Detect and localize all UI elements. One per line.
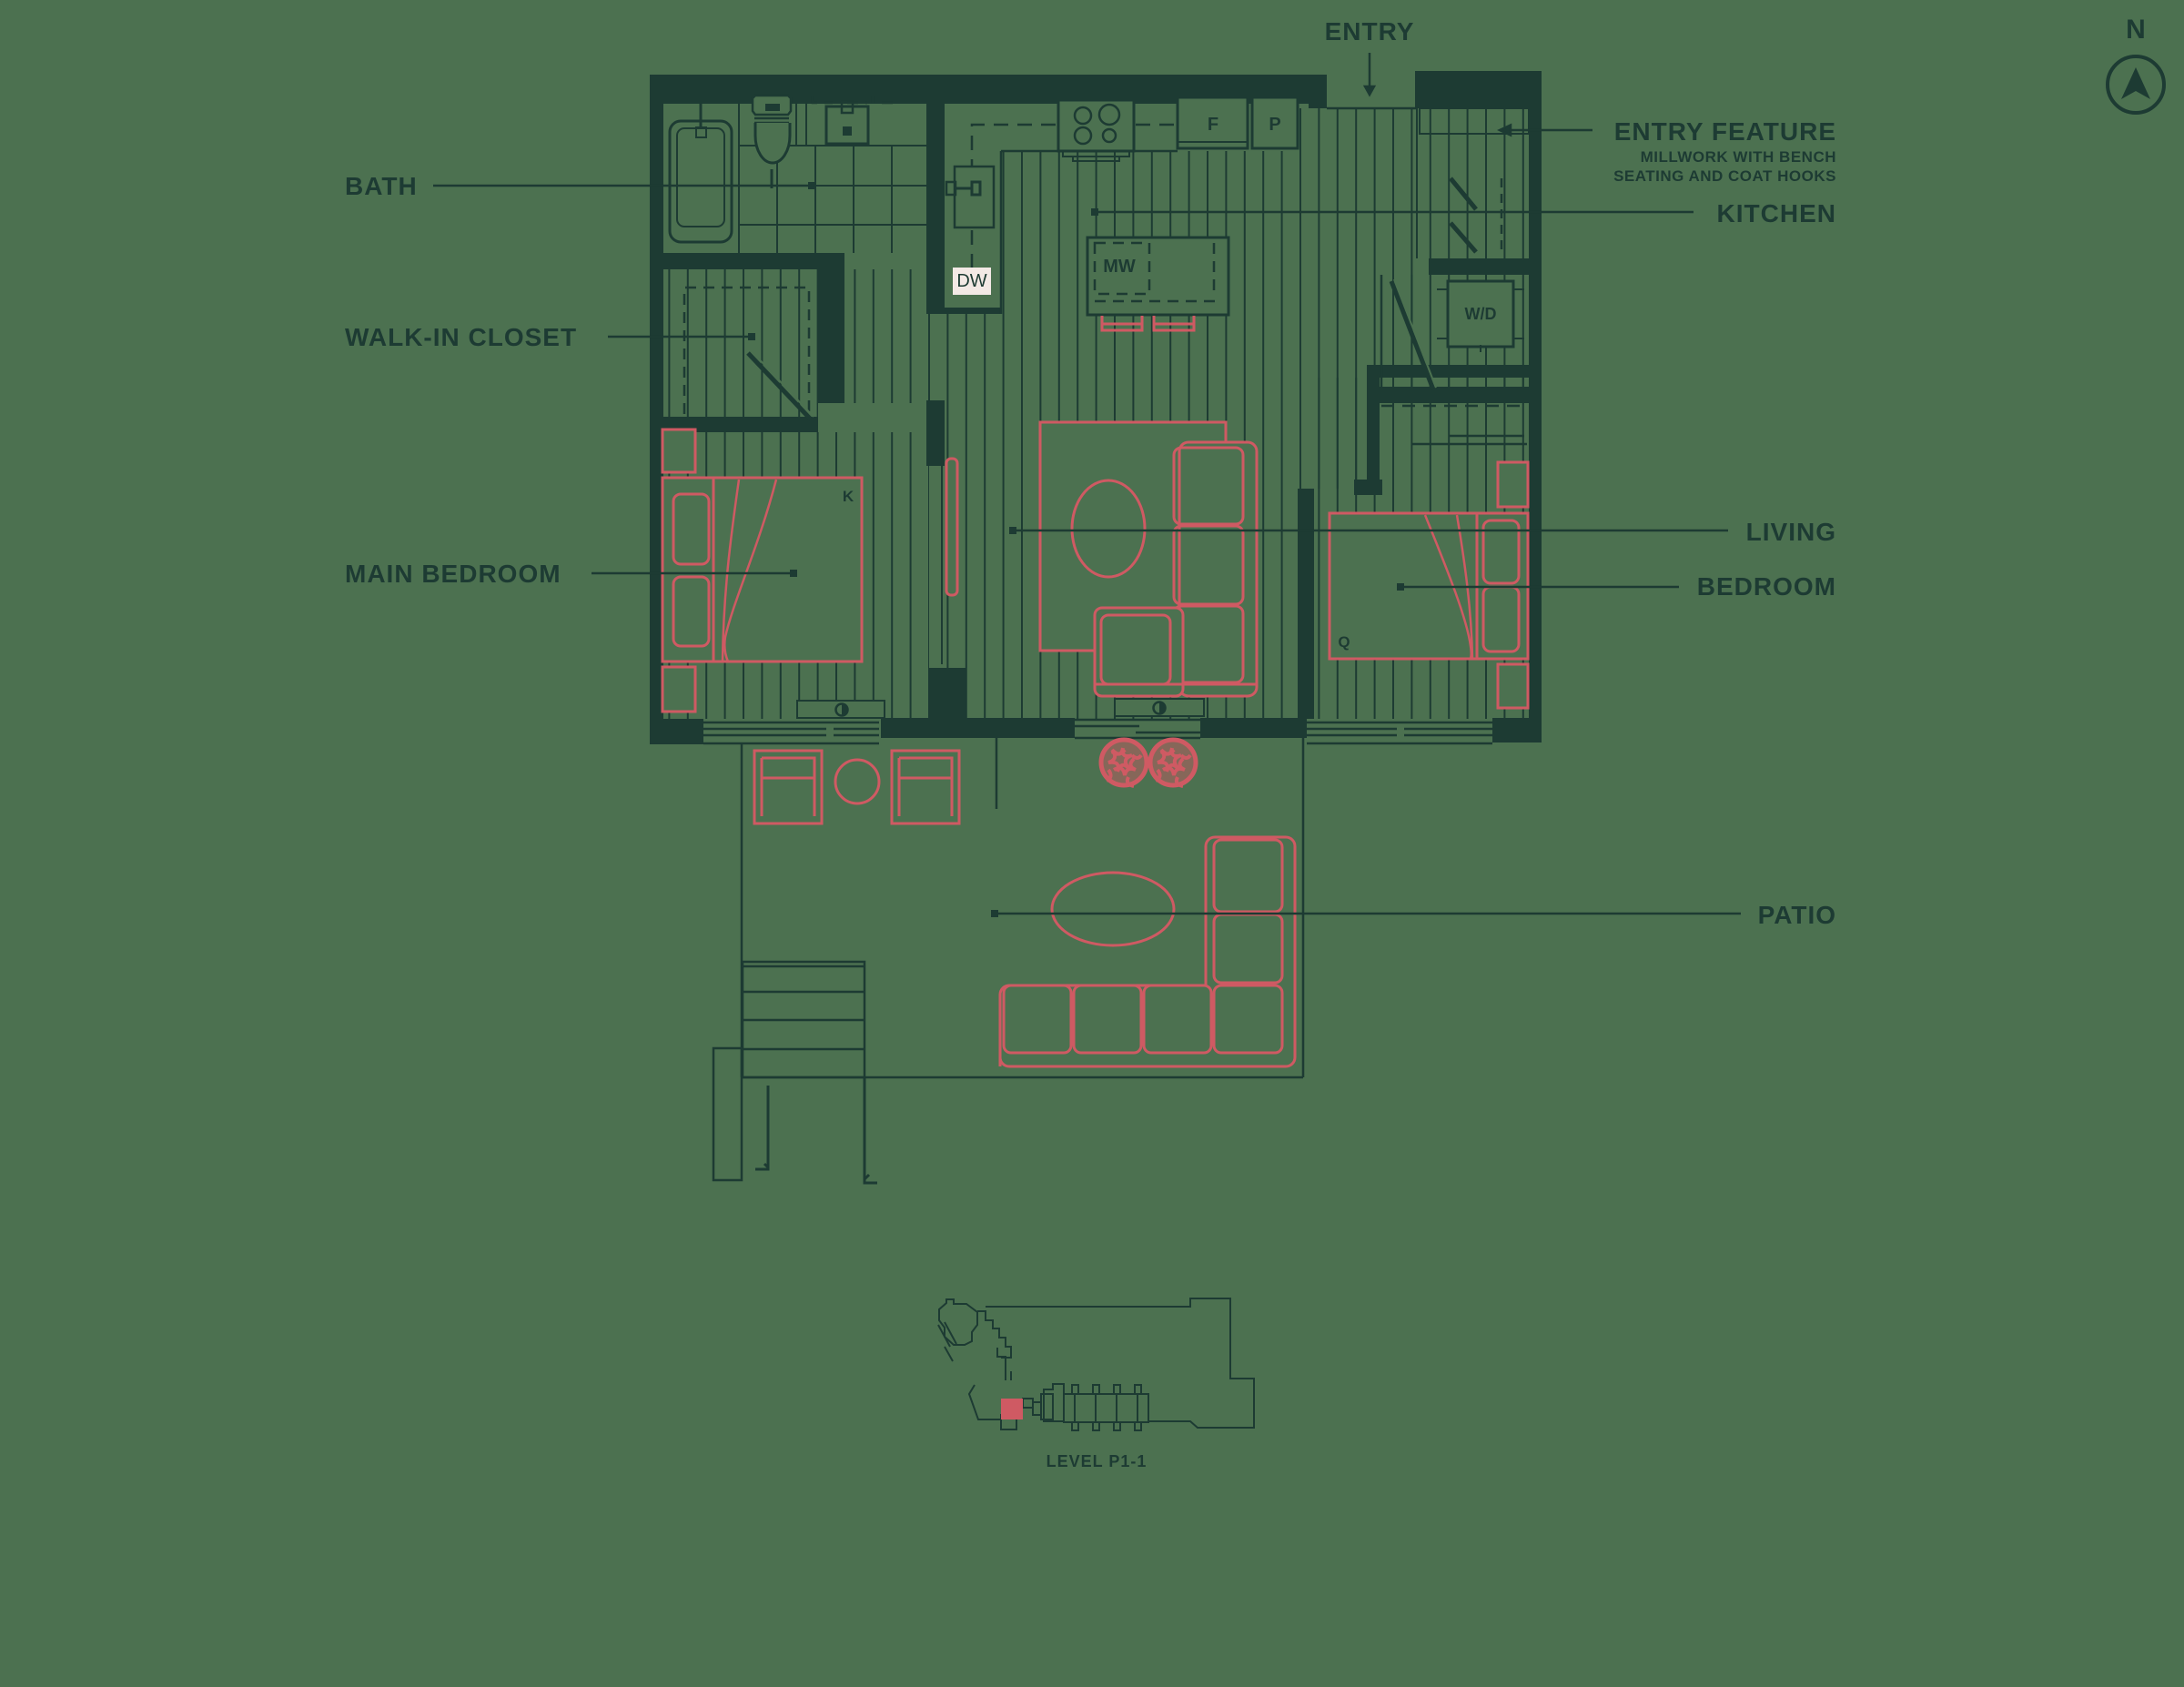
svg-text:MAIN BEDROOM: MAIN BEDROOM (345, 560, 561, 588)
svg-text:LEVEL P1-1: LEVEL P1-1 (1046, 1452, 1148, 1470)
svg-text:K: K (843, 488, 854, 505)
svg-text:F: F (1208, 115, 1218, 135)
svg-text:BEDROOM: BEDROOM (1697, 572, 1836, 601)
svg-text:MILLWORK WITH BENCH: MILLWORK WITH BENCH (1641, 148, 1836, 166)
svg-text:Q: Q (1338, 633, 1350, 651)
svg-text:DW: DW (956, 271, 986, 291)
svg-text:LIVING: LIVING (1746, 518, 1836, 546)
svg-text:W/D: W/D (1465, 305, 1497, 323)
svg-text:ENTRY FEATURE: ENTRY FEATURE (1614, 117, 1836, 146)
svg-text:SEATING AND COAT HOOKS: SEATING AND COAT HOOKS (1613, 167, 1836, 185)
svg-text:KITCHEN: KITCHEN (1717, 199, 1836, 227)
svg-text:P: P (1269, 115, 1280, 135)
svg-text:MW: MW (1103, 257, 1136, 277)
svg-text:BATH: BATH (345, 172, 418, 200)
svg-text:N: N (2126, 15, 2146, 45)
svg-text:ENTRY: ENTRY (1325, 17, 1415, 45)
svg-text:WALK-IN CLOSET: WALK-IN CLOSET (345, 323, 577, 351)
svg-text:PATIO: PATIO (1758, 901, 1836, 929)
